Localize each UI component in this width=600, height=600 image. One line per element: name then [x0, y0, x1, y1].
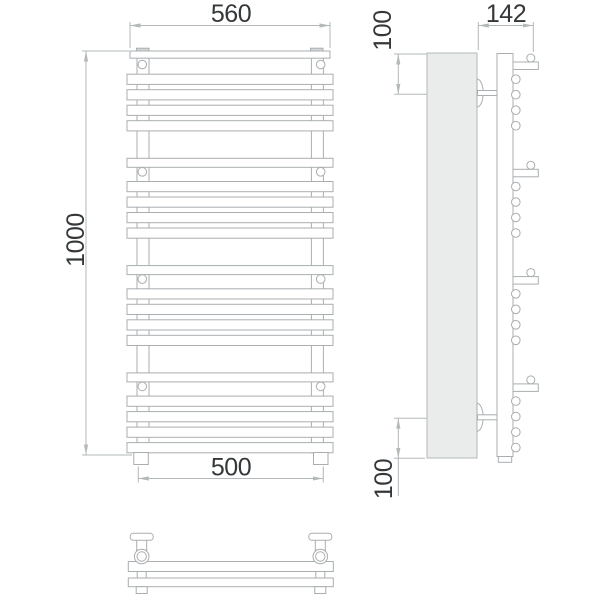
technical-drawing: 560 142 1000 500 100 100: [0, 0, 600, 600]
side-section-3: [512, 269, 539, 345]
dimension-label-142: 142: [486, 0, 526, 28]
side-section-2: [512, 161, 539, 237]
top-view-bar-rear: [128, 578, 333, 587]
top-view: [128, 533, 333, 593]
foot-side: [498, 457, 511, 463]
bracket-pin: [478, 415, 498, 420]
side-view: [427, 53, 538, 462]
wall-panel: [427, 53, 477, 458]
dimension-label-100-top: 100: [369, 10, 397, 50]
valve-foot-right: [315, 587, 326, 594]
wall-bracket-top: [477, 79, 497, 107]
dimension-label-100-bottom: 100: [370, 459, 398, 499]
front-view: [127, 48, 333, 464]
foot-left: [134, 453, 149, 465]
dimension-label-560: 560: [211, 0, 251, 28]
top-view-bar-front: [128, 562, 333, 572]
front-section-2: [127, 158, 333, 238]
side-section-4: [512, 376, 539, 452]
front-section-1: [127, 60, 333, 131]
extension-lines: [394, 54, 427, 94]
side-section-1: [512, 54, 539, 130]
dimension-front-bottom-width: 500: [138, 454, 323, 483]
dimension-bottom-bracket-offset: 100: [370, 418, 427, 499]
valve-nut-inner-right: [316, 552, 325, 561]
dimension-top-bracket-offset: 100: [369, 10, 427, 94]
extension-lines: [394, 418, 427, 458]
front-section-4: [127, 373, 333, 453]
wall-bracket-bottom: [477, 403, 497, 431]
foot-right: [314, 453, 329, 465]
valve-nut-inner-left: [137, 552, 146, 561]
dimension-label-500: 500: [211, 454, 251, 482]
valve-foot-left: [136, 587, 147, 594]
drawing-canvas: 560 142 1000 500 100 100: [0, 0, 600, 600]
valve-cap-left: [130, 533, 153, 540]
dimension-front-height: 1000: [62, 51, 132, 455]
bracket-pin: [478, 91, 498, 96]
dimension-front-top-width: 560: [130, 0, 330, 48]
collector-column: [497, 54, 513, 457]
front-section-3: [127, 266, 333, 346]
dimension-label-1000: 1000: [62, 213, 90, 267]
dimension-side-depth: 142: [478, 0, 533, 52]
valve-cap-right: [309, 533, 332, 540]
top-shelf-bar: [130, 51, 330, 58]
